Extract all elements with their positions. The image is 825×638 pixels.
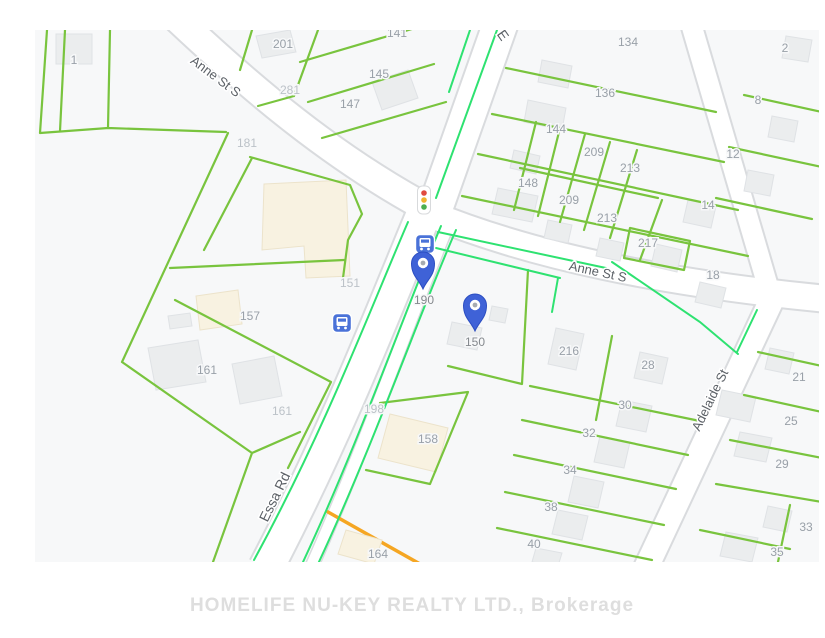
lot-label: 157 (240, 309, 260, 323)
lot-label: 14 (701, 198, 715, 212)
lot-label: 33 (799, 520, 813, 534)
bus-stop-icon[interactable] (416, 235, 435, 254)
lot-label: 148 (518, 176, 538, 190)
watermark: HOMELIFE NU-KEY REALTY LTD., Brokerage (190, 595, 634, 616)
lot-label: 29 (775, 457, 789, 471)
lot-label: 213 (597, 211, 617, 225)
lot-label: 38 (544, 500, 558, 514)
lot-label: 209 (584, 145, 604, 159)
lot-label: 147 (340, 97, 360, 111)
lot-label: 281 (280, 83, 300, 97)
lot-label: 145 (369, 67, 389, 81)
lot-label: 161 (197, 363, 217, 377)
lot-label: 181 (237, 136, 257, 150)
lot-label: 216 (559, 344, 579, 358)
lot-label: 141 (387, 26, 407, 40)
lot-label: 35 (770, 545, 784, 559)
lot-label: 12 (726, 147, 740, 161)
lot-label: 40 (527, 537, 541, 551)
pin-address-label: 190 (414, 293, 434, 307)
lot-label: 28 (641, 358, 655, 372)
lot-label: 30 (618, 398, 632, 412)
lot-label: 217 (638, 236, 658, 250)
lot-label: 164 (368, 547, 388, 561)
lot-label: 2 (782, 41, 789, 55)
lot-label: 209 (559, 193, 579, 207)
lot-label: 161 (272, 404, 292, 418)
lot-label: 198 (364, 402, 384, 416)
lot-label: 1 (71, 53, 78, 67)
parcel-map-canvas[interactable]: 1201281141145147181134213681442092131214… (0, 0, 825, 638)
lot-label: 158 (418, 432, 438, 446)
pin-address-label: 150 (465, 335, 485, 349)
lot-label: 134 (618, 35, 638, 49)
lot-label: 136 (595, 86, 615, 100)
lot-label: 18 (706, 268, 720, 282)
map-viewport[interactable]: 1201281141145147181134213681442092131214… (0, 0, 825, 638)
lot-label: 144 (546, 122, 566, 136)
lot-label: 8 (755, 93, 762, 107)
traffic-light-icon (418, 186, 431, 214)
bus-stop-icon[interactable] (333, 314, 352, 333)
lot-label: 21 (792, 370, 806, 384)
lot-label: 151 (340, 276, 360, 290)
lot-label: 213 (620, 161, 640, 175)
lot-label: 34 (563, 463, 577, 477)
lot-label: 32 (582, 426, 596, 440)
lot-label: 201 (273, 37, 293, 51)
lot-label: 25 (784, 414, 798, 428)
